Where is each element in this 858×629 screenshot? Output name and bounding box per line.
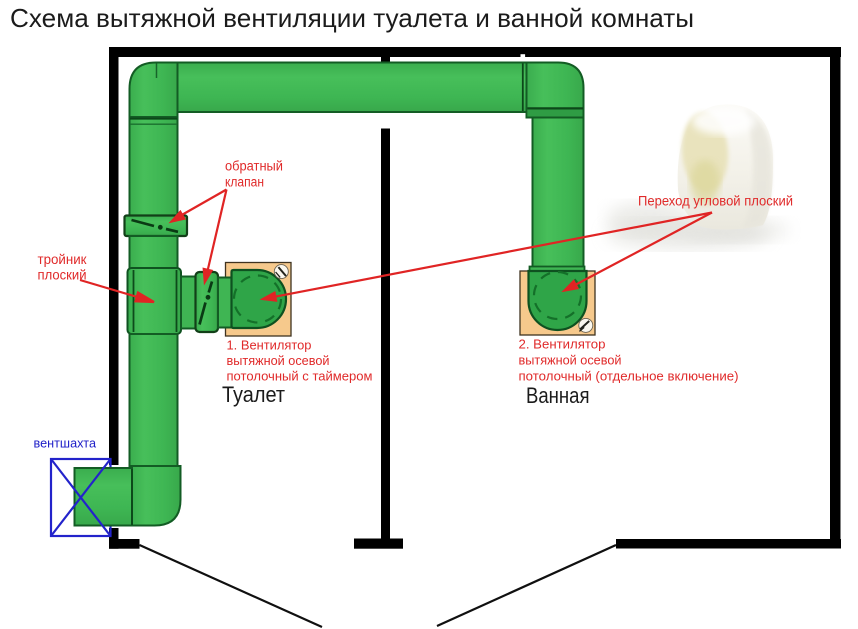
svg-text:тройник: тройник [38,252,87,267]
svg-text:плоский: плоский [38,268,87,283]
svg-text:клапан: клапан [225,175,264,190]
svg-text:Схема вытяжной вентиляции туал: Схема вытяжной вентиляции туалета и ванн… [10,3,694,33]
svg-text:вытяжной осевой: вытяжной осевой [227,353,330,368]
svg-text:2. Вентилятор: 2. Вентилятор [519,336,606,351]
svg-text:1. Вентилятор: 1. Вентилятор [227,337,312,352]
svg-text:Туалет: Туалет [222,382,285,407]
svg-text:Переход угловой плоский: Переход угловой плоский [638,194,793,209]
svg-text:вытяжной осевой: вытяжной осевой [519,352,622,367]
svg-text:Ванная: Ванная [526,383,590,408]
svg-text:потолочный (отдельное включени: потолочный (отдельное включение) [519,368,739,383]
svg-text:вентшахта: вентшахта [34,437,97,451]
svg-text:обратный: обратный [225,159,283,174]
